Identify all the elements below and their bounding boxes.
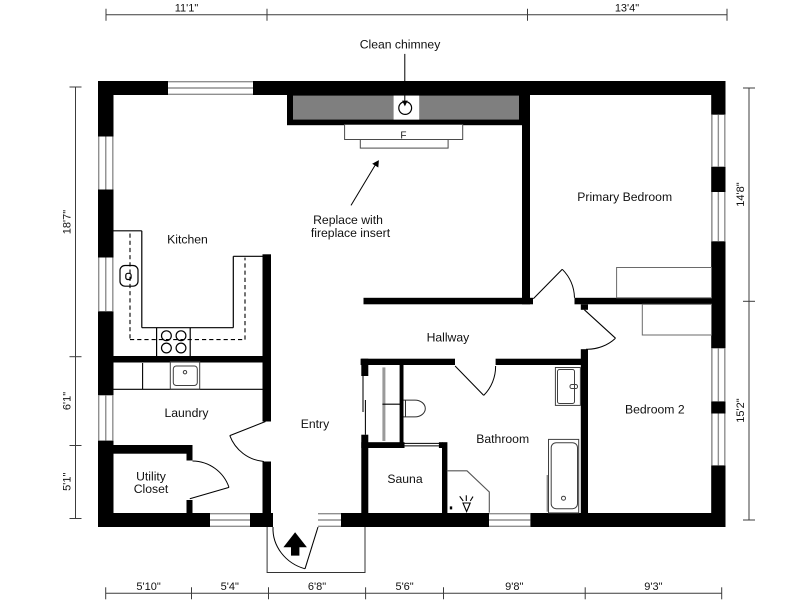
svg-text:9'3": 9'3" — [644, 581, 662, 593]
svg-text:15'2": 15'2" — [735, 398, 747, 422]
svg-text:9'8": 9'8" — [505, 581, 523, 593]
svg-text:5'4": 5'4" — [221, 581, 239, 593]
svg-text:fireplace insert: fireplace insert — [311, 226, 391, 240]
svg-text:Clean chimney: Clean chimney — [360, 38, 442, 52]
svg-text:Closet: Closet — [134, 482, 169, 496]
svg-text:18'7": 18'7" — [62, 210, 74, 234]
svg-text:13'4": 13'4" — [615, 3, 639, 15]
svg-text:Bathroom: Bathroom — [476, 432, 529, 446]
svg-text:Entry: Entry — [301, 417, 330, 431]
svg-text:5'6": 5'6" — [395, 581, 413, 593]
svg-text:Kitchen: Kitchen — [167, 233, 208, 247]
svg-text:6'8": 6'8" — [308, 581, 326, 593]
svg-text:5'1": 5'1" — [62, 472, 74, 490]
svg-text:14'8": 14'8" — [735, 182, 747, 206]
svg-text:Primary Bedroom: Primary Bedroom — [577, 190, 672, 204]
svg-text:Replace with: Replace with — [313, 213, 383, 227]
svg-text:Bedroom 2: Bedroom 2 — [625, 403, 685, 417]
svg-text:5'10": 5'10" — [136, 581, 160, 593]
svg-text:11'1": 11'1" — [175, 3, 199, 15]
svg-text:Hallway: Hallway — [427, 330, 471, 344]
svg-text:Laundry: Laundry — [164, 406, 209, 420]
svg-text:F: F — [400, 130, 406, 141]
svg-text:Sauna: Sauna — [387, 472, 422, 486]
svg-text:6'1": 6'1" — [62, 392, 74, 410]
